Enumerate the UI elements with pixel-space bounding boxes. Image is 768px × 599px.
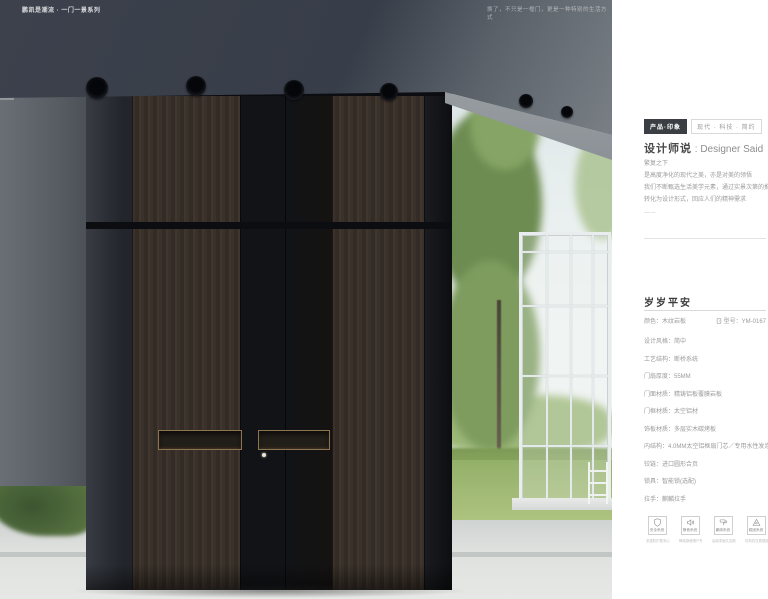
- ceiling-light: [380, 83, 398, 101]
- catalog-page: 鹏凯是潮流 · 一门一景系列 换了，不只是一樘门，更是一种特别的生活方式 产品·…: [0, 0, 768, 599]
- ladder-decor: [588, 462, 608, 504]
- panel-joint: [132, 96, 133, 590]
- statement-line: 繁复之下: [644, 158, 766, 170]
- spec-list: 设计风格：简中 工艺结构：断桥系统 门扇厚度：55MM 门面材质：精铸铝板覆膜岩…: [644, 336, 768, 511]
- tag-style-keywords: 现代 · 科技 · 简约: [691, 119, 762, 134]
- statement-line: 转化为设计形式，回应人们的精神需求: [644, 194, 766, 206]
- feature-quiet: 静音系统 降噪静音隔户外: [677, 516, 703, 544]
- ceiling-light: [519, 94, 533, 108]
- model-icon: [716, 318, 722, 324]
- pergola-beam: [522, 375, 608, 377]
- spec-item: 拉手：麒麟拉手: [644, 494, 768, 503]
- info-panel: 产品·印象 现代 · 科技 · 简约 设计师说 : Designer Said …: [612, 0, 768, 599]
- pergola-post: [570, 235, 572, 501]
- feature-badges: 安全系统 多重防护更安心 静音系统 降噪静音隔户外 氟碳系统 氟碳漆面久如新: [644, 516, 768, 544]
- spec-item: 铰链：进口圆形合页: [644, 459, 768, 468]
- panel-joint: [332, 96, 333, 590]
- ceiling-light: [186, 76, 206, 96]
- feature-stability: 稳固系统 抗风抗压更稳固: [743, 516, 768, 544]
- door-left-stile: [86, 96, 132, 590]
- door-right-stile: [424, 96, 452, 590]
- product-model: 型号：YM-0167: [716, 316, 766, 325]
- door-center-seam: [285, 96, 286, 590]
- sound-icon: [686, 518, 695, 527]
- statement-line: 我们不断甄选生活美学元素，通过实景次第的推演与文化淬炼: [644, 182, 766, 194]
- pergola-beam: [522, 305, 608, 307]
- door-ground-shadow: [70, 584, 470, 598]
- spec-item: 工艺结构：断桥系统: [644, 354, 768, 363]
- doorbell-light: [262, 453, 266, 457]
- spec-item: 门框材质：太空铝材: [644, 406, 768, 415]
- statement-line: 是高度净化的现代之美，亦是对美的领悟: [644, 170, 766, 182]
- designer-said-en: : Designer Said: [692, 144, 763, 155]
- shield-icon: [653, 518, 662, 527]
- designer-said-zh: 设计师说: [644, 143, 692, 155]
- transom-rail: [86, 222, 452, 229]
- pergola-beam: [522, 445, 608, 447]
- spec-item: 内结构：4.0MM太空铝框扇门芯／专用水性发泡板: [644, 441, 768, 450]
- product-model-text: 型号：YM-0167: [724, 316, 766, 325]
- designer-statement: 繁复之下 是高度净化的现代之美，亦是对美的领悟 我们不断甄选生活美学元素，通过实…: [644, 158, 766, 218]
- statement-line: ……: [644, 206, 766, 218]
- series-label: 鹏凯是潮流 · 一门一景系列: [22, 5, 100, 14]
- feature-security: 安全系统 多重防护更安心: [644, 516, 670, 544]
- pergola-post: [546, 235, 548, 501]
- ceiling-light: [284, 80, 304, 100]
- designer-said-heading: 设计师说 : Designer Said: [644, 140, 763, 156]
- door-handle-left: [158, 430, 242, 450]
- spec-item: 设计风格：简中: [644, 336, 768, 345]
- spec-item: 门面材质：精铸铝板覆膜岩板: [644, 389, 768, 398]
- paint-roller-icon: [719, 518, 728, 527]
- product-color: 颜色：木纹岩板: [644, 316, 686, 325]
- triangle-icon: [752, 518, 761, 527]
- product-meta: 颜色：木纹岩板 型号：YM-0167: [644, 316, 766, 325]
- divider: [644, 238, 766, 239]
- pergola-beam: [522, 251, 608, 253]
- feature-coating: 氟碳系统 氟碳漆面久如新: [710, 516, 736, 544]
- slogan-label: 换了，不只是一樘门，更是一种特别的生活方式: [487, 5, 612, 21]
- door-wood-panel-left: [132, 96, 240, 590]
- door-handle-right: [258, 430, 330, 450]
- divider: [644, 310, 766, 311]
- panel-joint: [240, 96, 241, 590]
- door-bronze-shadow: [286, 96, 332, 590]
- spec-item: 饰板材质：多层实木碳烤板: [644, 424, 768, 433]
- tree-trunk: [497, 300, 501, 465]
- left-wall: [0, 50, 88, 486]
- spec-item: 锁具：智能锁(选配): [644, 476, 768, 485]
- tag-product-impression: 产品·印象: [644, 119, 687, 134]
- door-wood-panel-right: [332, 96, 424, 590]
- panel-joint: [424, 96, 425, 590]
- spec-item: 门扇厚度：55MM: [644, 371, 768, 380]
- entrance-photo: 鹏凯是潮流 · 一门一景系列 换了，不只是一樘门，更是一种特别的生活方式: [0, 0, 612, 599]
- product-name: 岁岁平安: [644, 294, 692, 309]
- category-tags: 产品·印象 现代 · 科技 · 简约: [644, 119, 762, 134]
- ceiling-light: [86, 77, 108, 99]
- ceiling-light: [561, 106, 573, 118]
- entry-door: [86, 92, 452, 590]
